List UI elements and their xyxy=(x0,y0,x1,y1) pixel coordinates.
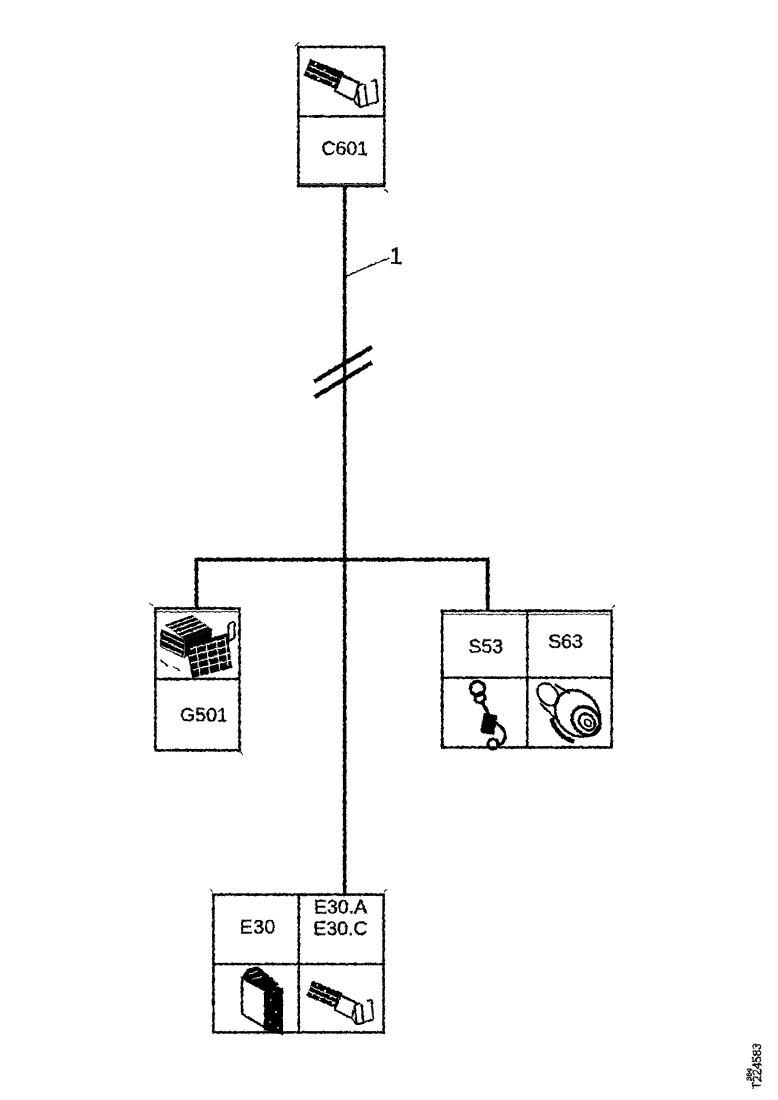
svg-text:364: 364 xyxy=(745,1068,754,1081)
svg-text:T224583: T224583 xyxy=(751,1043,764,1089)
svg-text:C601: C601 xyxy=(321,138,368,160)
svg-text:S63: S63 xyxy=(548,631,583,653)
svg-text:S53: S53 xyxy=(468,636,503,658)
svg-text:G501: G501 xyxy=(180,705,228,727)
svg-text:E30.A: E30.A xyxy=(314,897,367,919)
svg-text:E30: E30 xyxy=(240,917,276,939)
svg-text:E30.C: E30.C xyxy=(313,918,367,940)
svg-text:1: 1 xyxy=(389,243,402,270)
